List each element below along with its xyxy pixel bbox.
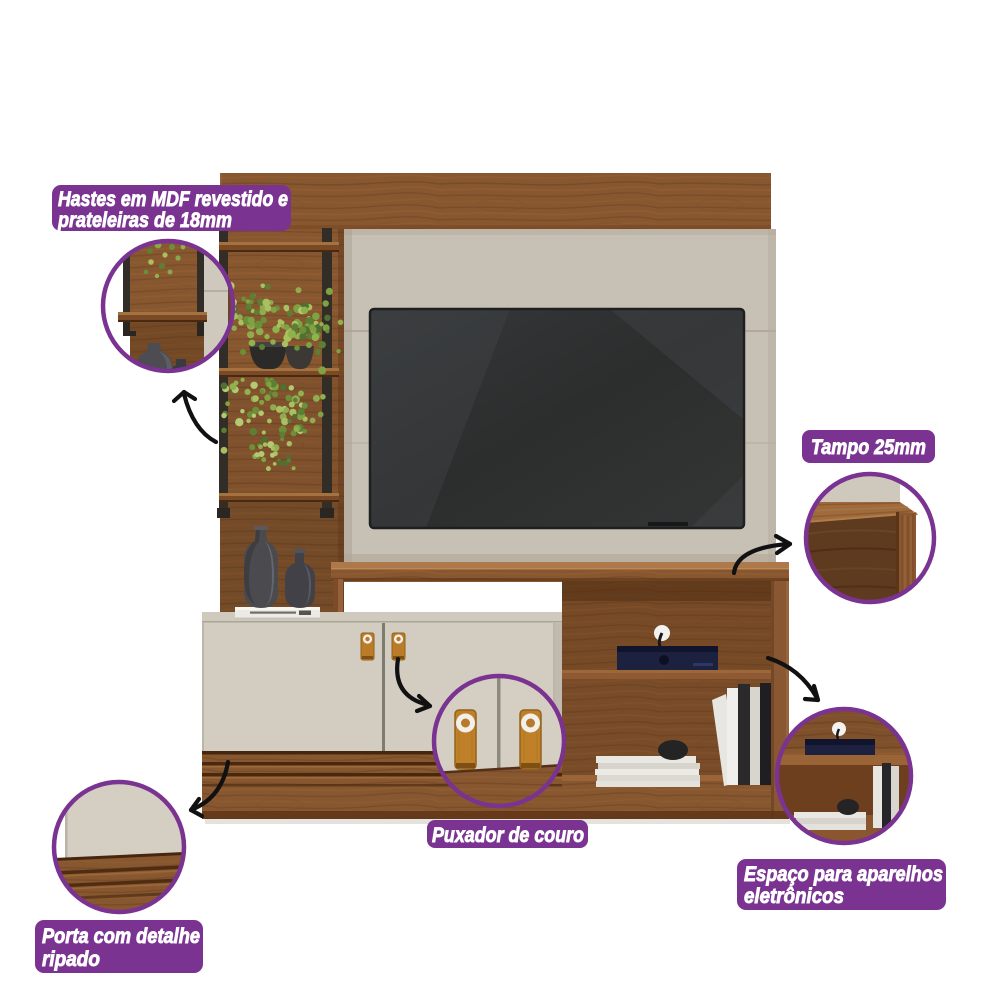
svg-text:Porta com detalhe: Porta com detalhe <box>42 925 200 948</box>
svg-text:Hastes em MDF revestido e: Hastes em MDF revestido e <box>58 188 288 211</box>
svg-text:eletrônicos: eletrônicos <box>744 885 844 908</box>
svg-text:Espaço para aparelhos: Espaço para aparelhos <box>744 863 943 886</box>
svg-text:prateleiras de 18mm: prateleiras de 18mm <box>57 209 232 232</box>
svg-text:Tampo 25mm: Tampo 25mm <box>811 436 926 459</box>
svg-text:ripado: ripado <box>42 948 100 971</box>
svg-text:Puxador de couro: Puxador de couro <box>432 824 584 847</box>
